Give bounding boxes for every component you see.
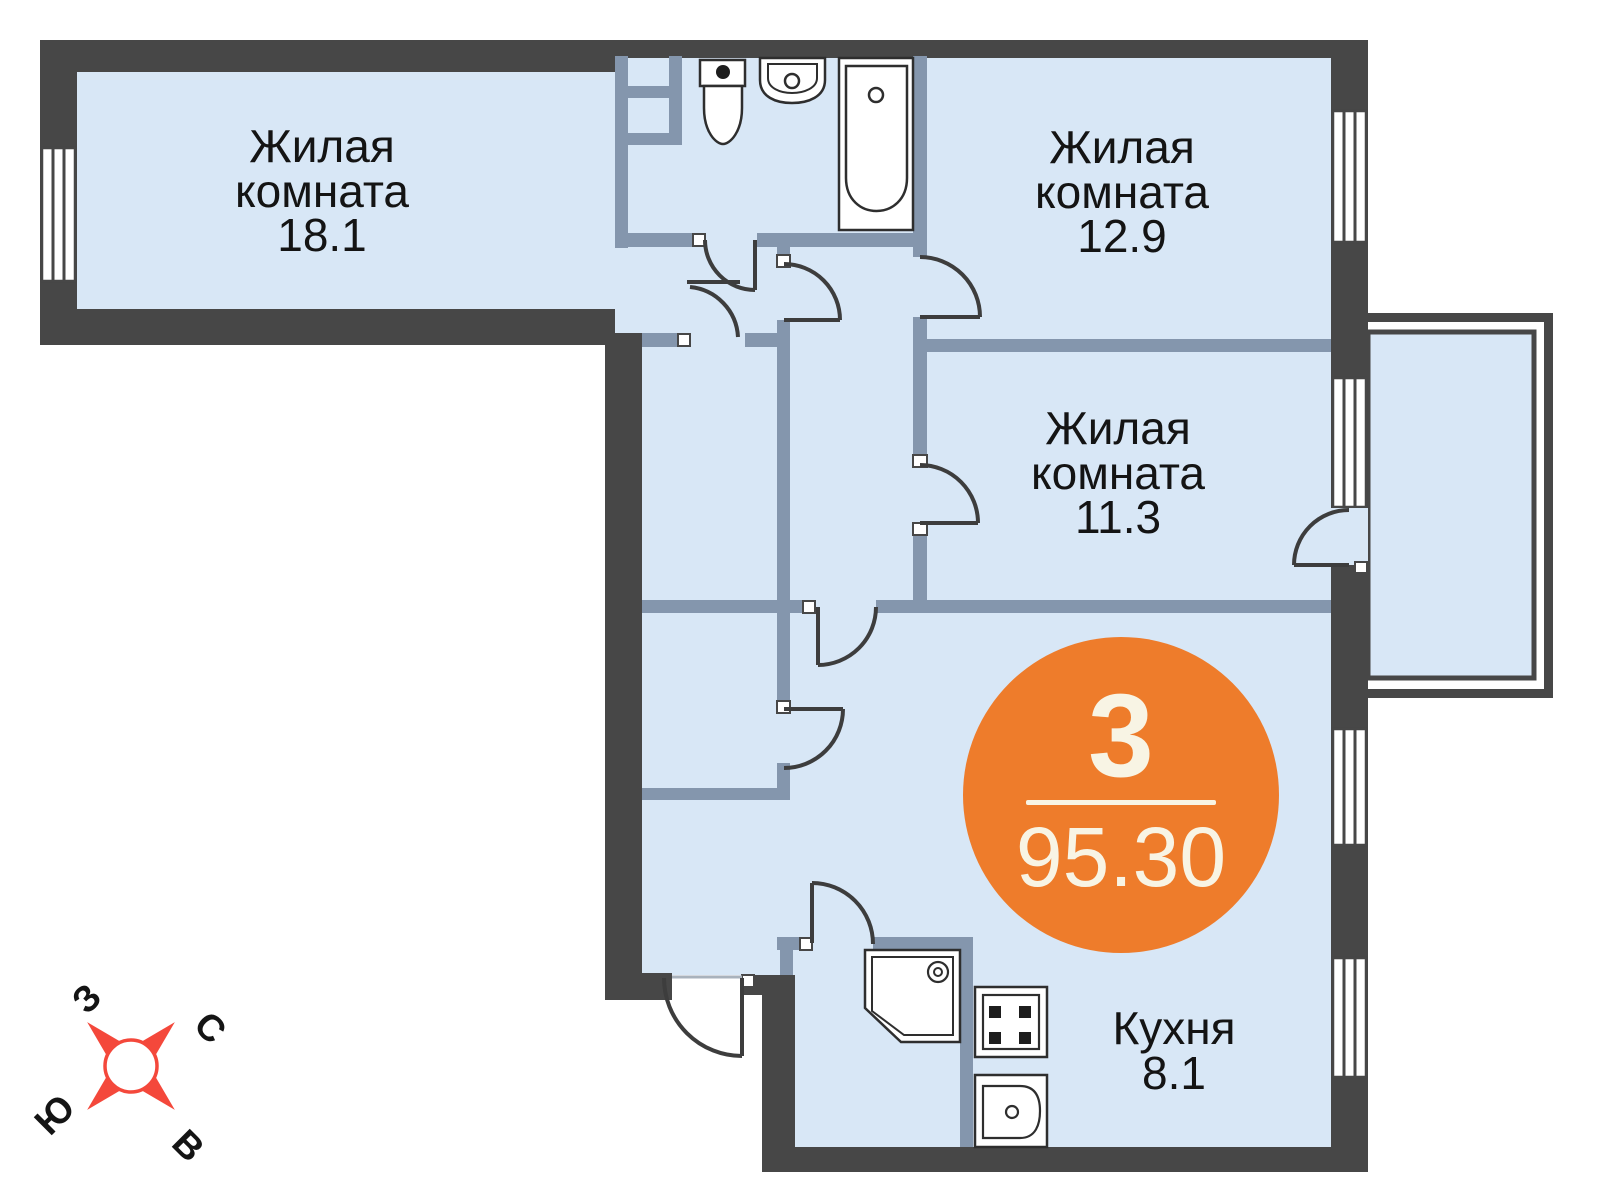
room-label-living-2: Жилая комната 12.9 [952, 125, 1292, 259]
room-type-line: комната [948, 451, 1288, 496]
badge-divider [1026, 800, 1216, 805]
window-room2 [1333, 111, 1366, 242]
stove-icon [975, 987, 1047, 1057]
window-kitchen-1 [1333, 729, 1366, 845]
badge-rooms-count: 3 [1088, 685, 1154, 789]
room-type-line: Жилая [152, 124, 492, 169]
window-room3-balcony [1333, 378, 1366, 507]
room-area: 18.1 [152, 213, 492, 258]
room-type-line: Жилая [948, 406, 1288, 451]
room-label-living-1: Жилая комната 18.1 [152, 124, 492, 258]
window-room1 [42, 148, 75, 281]
floor-plan: Жилая комната 18.1 Жилая комната 12.9 Жи… [0, 0, 1600, 1200]
room-type-line: комната [152, 169, 492, 214]
badge-total-area: 95.30 [1016, 815, 1226, 899]
window-kitchen-2 [1333, 958, 1366, 1077]
room-label-living-3: Жилая комната 11.3 [948, 406, 1288, 540]
room-area: 8.1 [1054, 1051, 1294, 1096]
room-area: 11.3 [948, 495, 1288, 540]
apartment-badge: 3 95.30 [963, 637, 1279, 953]
room-type-line: комната [952, 170, 1292, 215]
door-entrance [664, 977, 742, 1056]
balcony-door-opening [1331, 508, 1368, 565]
balcony [1368, 313, 1553, 698]
room-type-line: Жилая [952, 125, 1292, 170]
room-type-line: Кухня [1054, 1006, 1294, 1051]
kitchen-sink-icon [975, 1075, 1047, 1147]
washbasin-icon [760, 58, 825, 103]
room-label-kitchen: Кухня 8.1 [1054, 1006, 1294, 1095]
room-area: 12.9 [952, 214, 1292, 259]
bathtub-icon [839, 58, 913, 230]
